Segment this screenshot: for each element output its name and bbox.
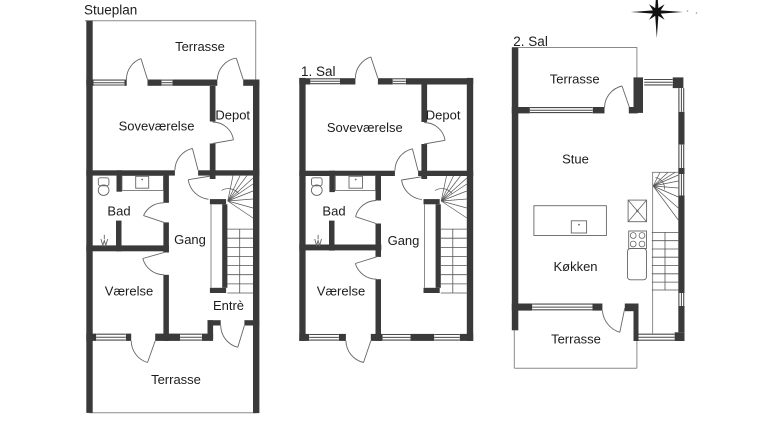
- svg-text:2. Sal: 2. Sal: [513, 34, 548, 49]
- svg-text:Værelse: Værelse: [105, 283, 153, 298]
- svg-text:Soveværelse: Soveværelse: [119, 119, 195, 134]
- svg-text:Gang: Gang: [388, 233, 420, 248]
- svg-text:Depot: Depot: [215, 107, 250, 122]
- svg-text:Terrasse: Terrasse: [151, 372, 201, 387]
- svg-text:Depot: Depot: [426, 107, 461, 122]
- svg-text:Stueplan: Stueplan: [84, 3, 137, 18]
- svg-text:Stue: Stue: [562, 151, 589, 166]
- svg-text:Køkken: Køkken: [553, 259, 597, 274]
- svg-text:1. Sal: 1. Sal: [301, 64, 336, 79]
- svg-text:Bad: Bad: [107, 203, 130, 218]
- svg-text:Terrasse: Terrasse: [175, 39, 225, 54]
- svg-text:Bad: Bad: [322, 203, 345, 218]
- svg-text:Terrasse: Terrasse: [550, 71, 600, 86]
- svg-text:Værelse: Værelse: [317, 283, 365, 298]
- svg-text:Soveværelse: Soveværelse: [327, 120, 403, 135]
- svg-text:Entrè: Entrè: [213, 298, 244, 313]
- svg-text:Gang: Gang: [174, 232, 206, 247]
- svg-text:Terrasse: Terrasse: [551, 331, 601, 346]
